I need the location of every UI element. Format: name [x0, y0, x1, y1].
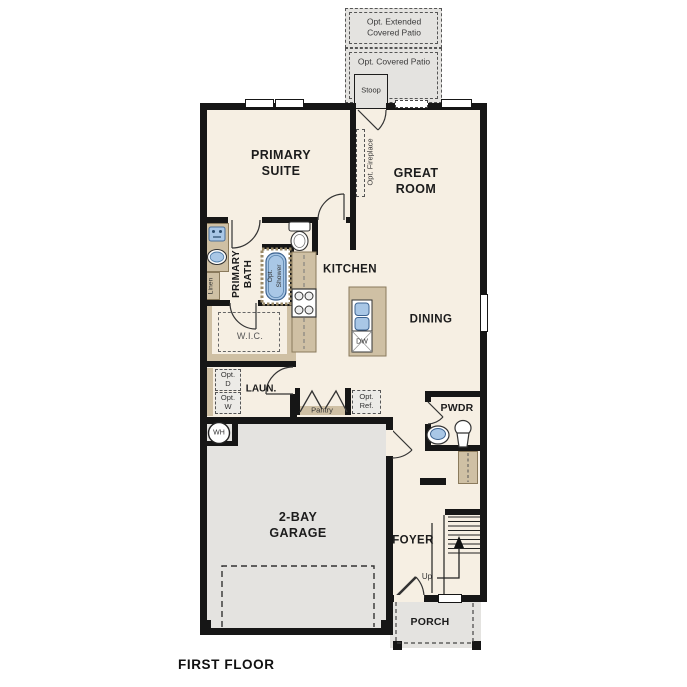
wall	[262, 244, 288, 250]
label-opt-extended-patio: Opt. Extended Covered Patio	[367, 16, 421, 37]
label-wic: W.I.C.	[237, 331, 263, 343]
label-opt-shower: Opt. Shower	[267, 264, 285, 287]
label-foyer: FOYER	[392, 534, 434, 549]
label-water-heater: WH	[213, 428, 225, 437]
label-laundry: LAUN.	[246, 383, 277, 396]
opt-dryer-box: Opt. D	[215, 369, 241, 391]
opt-door-window	[395, 100, 428, 108]
label-primary-bath: PRIMARY BATH	[231, 250, 255, 298]
wall	[346, 217, 356, 223]
label-first-floor-title: FIRST FLOOR	[178, 656, 275, 674]
wall	[200, 300, 230, 306]
window	[245, 99, 274, 108]
label-linen: Linen	[208, 278, 217, 295]
wall	[425, 391, 431, 402]
label-garage: 2-BAY GARAGE	[269, 509, 326, 542]
wall	[345, 388, 351, 415]
window	[438, 594, 462, 603]
label-dishwasher: DW	[356, 337, 368, 346]
wall	[420, 478, 446, 485]
label-kitchen: KITCHEN	[323, 263, 377, 278]
wall	[200, 217, 228, 223]
label-stoop: Stoop	[361, 87, 381, 96]
wall	[393, 641, 402, 650]
wall	[445, 509, 481, 515]
label-pantry: Pantry	[311, 407, 333, 416]
wall	[200, 620, 211, 629]
wall	[205, 441, 238, 446]
wall	[295, 388, 300, 415]
wall	[480, 103, 487, 602]
wall	[425, 391, 481, 397]
wall	[350, 103, 356, 250]
wall	[258, 300, 296, 306]
wall	[472, 641, 481, 650]
wall	[312, 217, 318, 255]
label-powder: PWDR	[441, 402, 474, 416]
wall	[425, 445, 481, 451]
label-great-room: GREAT ROOM	[394, 165, 439, 198]
wall	[262, 217, 318, 223]
bath-vanity-counter	[204, 223, 229, 272]
floor-plan: Opt. D Opt. W Opt. Ref.	[0, 0, 687, 687]
label-stairs-up: Up	[422, 572, 432, 582]
wall	[288, 244, 294, 306]
wall	[200, 417, 393, 424]
wall	[381, 620, 393, 629]
label-opt-covered-patio: Opt. Covered Patio	[358, 57, 430, 68]
label-primary-suite: PRIMARY SUITE	[251, 147, 311, 180]
wic-wall-right	[287, 306, 296, 361]
window	[441, 99, 472, 108]
window	[480, 294, 488, 332]
wall	[200, 628, 393, 635]
foyer-closet	[458, 451, 478, 484]
wall	[232, 423, 238, 443]
opt-refrigerator-box: Opt. Ref.	[352, 390, 381, 414]
label-dining: DINING	[410, 313, 453, 328]
opt-fireplace-box	[356, 129, 365, 197]
door-opening	[394, 595, 424, 602]
wall	[200, 361, 296, 367]
label-opt-fireplace: Opt. Fireplace	[367, 138, 376, 185]
door-opening	[386, 430, 393, 456]
label-porch: PORCH	[411, 616, 450, 630]
window	[275, 99, 304, 108]
opt-washer-box: Opt. W	[215, 392, 241, 414]
wall	[200, 103, 207, 635]
